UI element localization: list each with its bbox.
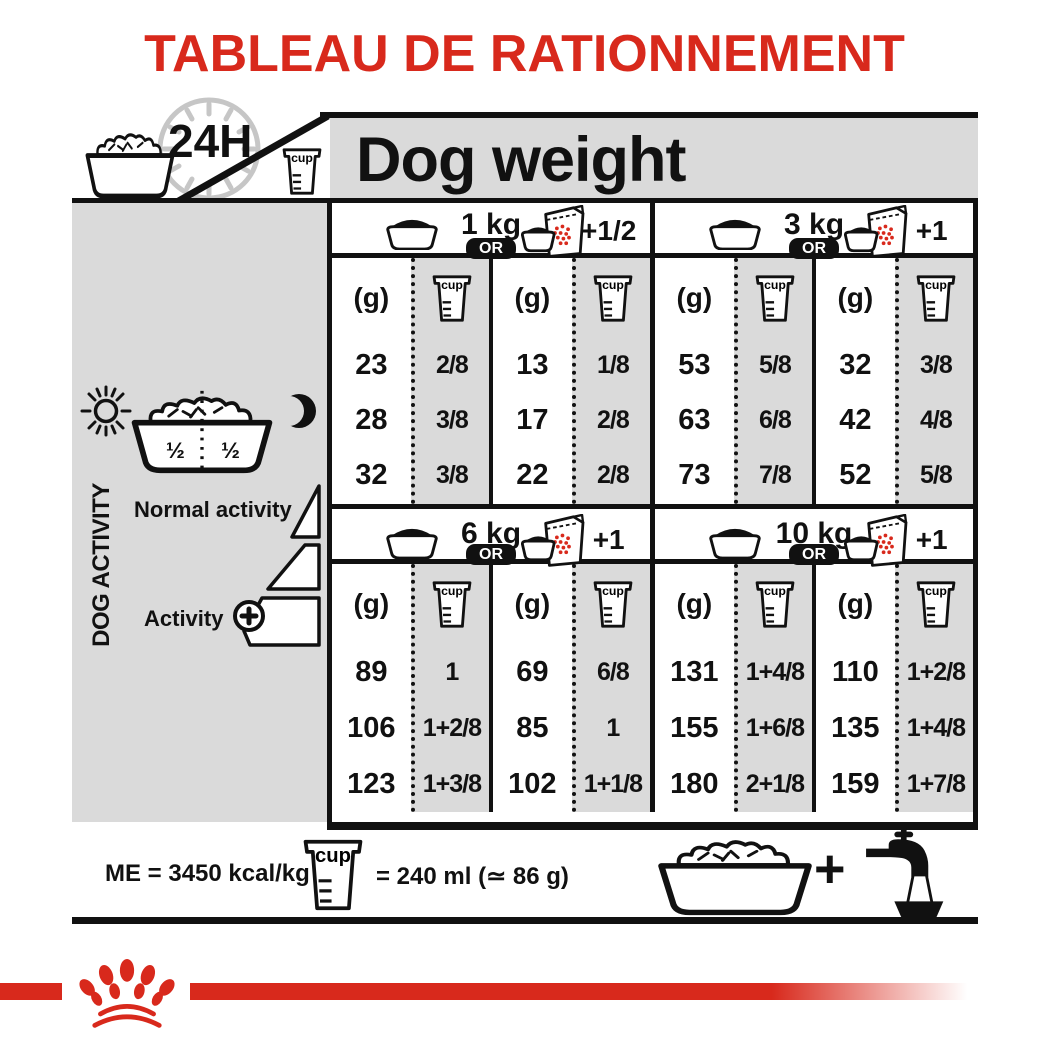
grams-column: (g) 131 155 180 <box>655 564 734 812</box>
cup-value: 1+7/8 <box>899 756 973 812</box>
grams-header: (g) <box>332 564 411 644</box>
food-pouch-icon <box>844 514 912 570</box>
bowl-plus-pouch-columns: (g) 110 135 159 cup 1+2/8 1+4/8 <box>812 564 973 812</box>
data-section-6kg: (g) 89 106 123 cup 1 1+2/8 <box>332 564 650 812</box>
bowl-plus-pouch-columns: (g) 32 42 52 cup 3/8 4/8 <box>812 258 973 504</box>
cup-label: cup <box>315 845 351 867</box>
measuring-cup-icon: cup <box>300 836 366 914</box>
cup-value: 1+4/8 <box>738 644 812 700</box>
activity-ramp-icon <box>228 481 328 653</box>
bowl-only-columns: (g) 23 28 32 cup 2/8 3/8 <box>332 258 489 504</box>
or-badge: OR <box>789 238 839 259</box>
grams-column: (g) 69 85 102 <box>493 564 572 812</box>
data-section-1kg: (g) 23 28 32 cup 2/8 3/8 <box>332 258 650 504</box>
food-bowl-icon <box>707 217 763 250</box>
kibble-bowl-icon <box>82 127 178 200</box>
cup-value: 3/8 <box>899 338 973 393</box>
grams-value: 155 <box>655 700 734 756</box>
bowl-plus-pouch-columns: (g) 13 17 22 cup 1/8 2/8 <box>489 258 650 504</box>
table-group-small-weights: 1 kg OR <box>332 203 973 504</box>
moon-icon <box>278 389 316 433</box>
cup-value: 1+2/8 <box>899 644 973 700</box>
cup-value: 7/8 <box>738 448 812 503</box>
measuring-cup-icon: cup <box>754 579 796 630</box>
grams-value: 131 <box>655 644 734 700</box>
supplement-label: +1 <box>916 524 948 556</box>
weight-section-header-6kg: 6 kg OR <box>332 509 650 559</box>
grams-value: 28 <box>332 393 411 448</box>
water-tap-icon <box>856 826 944 924</box>
bottom-rule <box>72 917 978 924</box>
svg-text:cup: cup <box>764 278 786 292</box>
grams-value: 180 <box>655 756 734 812</box>
grams-column: (g) 32 42 52 <box>816 258 895 504</box>
measuring-cup-icon: cup <box>281 146 323 197</box>
svg-text:cup: cup <box>602 584 624 598</box>
grams-header: (g) <box>493 564 572 644</box>
grams-column: (g) 23 28 32 <box>332 258 411 504</box>
metabolizable-energy-label: ME = 3450 kcal/kg <box>105 860 310 888</box>
svg-text:cup: cup <box>764 584 786 598</box>
weight-section-header-3kg: 3 kg OR <box>650 203 973 253</box>
grams-value: 106 <box>332 700 411 756</box>
cup-column: cup 1+2/8 1+4/8 1+7/8 <box>895 564 973 812</box>
cup-column: cup 6/8 1 1+1/8 <box>572 564 650 812</box>
measuring-cup-icon: cup <box>431 273 473 324</box>
cup-value: 2/8 <box>415 338 489 393</box>
grams-header: (g) <box>816 258 895 338</box>
grams-value: 123 <box>332 756 411 812</box>
page-title: TABLEAU DE RATIONNEMENT <box>0 24 1049 84</box>
cup-value: 1+2/8 <box>415 700 489 756</box>
svg-text:cup: cup <box>441 278 463 292</box>
cup-value: 3/8 <box>415 448 489 503</box>
table-data-row: (g) 89 106 123 cup 1 1+2/8 <box>332 564 973 812</box>
grams-value: 73 <box>655 448 734 503</box>
footer-strip: ME = 3450 kcal/kg cup = 240 ml (≃ 86 g) … <box>72 830 978 917</box>
grams-column: (g) 89 106 123 <box>332 564 411 812</box>
measuring-cup-icon: cup <box>592 273 634 324</box>
grams-value: 85 <box>493 700 572 756</box>
grams-value: 23 <box>332 338 411 393</box>
or-badge: OR <box>466 544 516 565</box>
grams-value: 89 <box>332 644 411 700</box>
cup-value: 5/8 <box>899 448 973 503</box>
measuring-cup-icon: cup <box>431 579 473 630</box>
ration-table-page: TABLEAU DE RATIONNEMENT 24H Dog weight c… <box>0 0 1049 1049</box>
cup-value: 5/8 <box>738 338 812 393</box>
cup-value: 1 <box>415 644 489 700</box>
grams-value: 63 <box>655 393 734 448</box>
cup-value: 1+3/8 <box>415 756 489 812</box>
grams-header: (g) <box>655 258 734 338</box>
cup-column: cup 2/8 3/8 3/8 <box>411 258 489 504</box>
supplement-label: +1 <box>593 524 625 556</box>
activity-label: Activity <box>144 606 223 632</box>
food-pouch-icon <box>521 514 589 570</box>
cup-value: 2/8 <box>576 393 650 448</box>
grams-value: 69 <box>493 644 572 700</box>
cup-value: 1+1/8 <box>576 756 650 812</box>
half-half-bowl-icon: ½ ½ <box>126 389 278 475</box>
grams-column: (g) 13 17 22 <box>493 258 572 504</box>
cup-column: cup 3/8 4/8 5/8 <box>895 258 973 504</box>
cup-value: 2/8 <box>576 448 650 503</box>
weight-section-header-1kg: 1 kg OR <box>332 203 650 253</box>
table-data-row: (g) 23 28 32 cup 2/8 3/8 <box>332 258 973 504</box>
weight-header-band: 1 kg OR <box>332 203 973 258</box>
grams-value: 32 <box>816 338 895 393</box>
food-bowl-icon <box>384 217 440 250</box>
food-bowl-icon <box>384 526 440 559</box>
measuring-cup-icon: cup <box>754 273 796 324</box>
kibble-bowl-icon <box>652 833 818 917</box>
grams-column: (g) 53 63 73 <box>655 258 734 504</box>
grams-value: 17 <box>493 393 572 448</box>
cup-value: 1+6/8 <box>738 700 812 756</box>
ration-table: 1 kg OR <box>327 203 978 830</box>
royal-canin-crown-logo <box>70 958 184 1032</box>
grams-value: 52 <box>816 448 895 503</box>
bowl-plus-pouch-columns: (g) 69 85 102 cup 6/8 1 1 <box>489 564 650 812</box>
cup-value: 6/8 <box>576 644 650 700</box>
grams-header: (g) <box>816 564 895 644</box>
svg-text:cup: cup <box>925 278 947 292</box>
grams-value: 42 <box>816 393 895 448</box>
food-bowl-icon <box>707 526 763 559</box>
dog-activity-label: DOG ACTIVITY <box>88 483 116 647</box>
bowl-only-columns: (g) 53 63 73 cup 5/8 6/8 <box>655 258 812 504</box>
cup-equivalence-label: = 240 ml (≃ 86 g) <box>376 862 569 891</box>
grams-value: 22 <box>493 448 572 503</box>
bowl-only-columns: (g) 131 155 180 cup 1+4/8 1+6/8 <box>655 564 812 812</box>
cup-column: cup 1 1+2/8 1+3/8 <box>411 564 489 812</box>
cup-value: 1 <box>576 700 650 756</box>
half-left-label: ½ <box>166 438 185 463</box>
grams-value: 32 <box>332 448 411 503</box>
cup-column: cup 1+4/8 1+6/8 2+1/8 <box>734 564 812 812</box>
cup-value: 3/8 <box>415 393 489 448</box>
measuring-cup-icon: cup <box>915 579 957 630</box>
weight-label: 1 kg <box>461 208 521 242</box>
grams-value: 135 <box>816 700 895 756</box>
cup-label: cup <box>291 151 313 165</box>
or-badge: OR <box>789 544 839 565</box>
grams-value: 53 <box>655 338 734 393</box>
cup-column: cup 5/8 6/8 7/8 <box>734 258 812 504</box>
data-section-10kg: (g) 131 155 180 cup 1+4/8 1+6/8 <box>650 564 973 812</box>
food-pouch-icon <box>521 205 589 261</box>
grams-column: (g) 110 135 159 <box>816 564 895 812</box>
supplement-label: +1/2 <box>581 215 636 247</box>
measuring-cup-icon: cup <box>592 579 634 630</box>
svg-text:cup: cup <box>925 584 947 598</box>
cup-value: 6/8 <box>738 393 812 448</box>
supplement-label: +1 <box>916 215 948 247</box>
cup-value: 1/8 <box>576 338 650 393</box>
half-right-label: ½ <box>221 438 240 463</box>
cup-column: cup 1/8 2/8 2/8 <box>572 258 650 504</box>
svg-text:cup: cup <box>441 584 463 598</box>
cup-value: 1+4/8 <box>899 700 973 756</box>
cup-value: 4/8 <box>899 393 973 448</box>
cup-value: 2+1/8 <box>738 756 812 812</box>
dog-weight-title: Dog weight <box>356 124 685 196</box>
bowl-only-columns: (g) 89 106 123 cup 1 1+2/8 <box>332 564 489 812</box>
svg-text:cup: cup <box>602 278 624 292</box>
or-badge: OR <box>466 238 516 259</box>
grams-header: (g) <box>332 258 411 338</box>
plus-icon: + <box>814 838 846 900</box>
measuring-cup-icon: cup <box>915 273 957 324</box>
dog-activity-sidebar: ½ ½ DOG ACTIVITY Normal activity Activit… <box>72 203 327 822</box>
weight-header-band: 6 kg OR <box>332 504 973 564</box>
grams-value: 110 <box>816 644 895 700</box>
table-group-large-weights: 6 kg OR <box>332 504 973 812</box>
grams-value: 102 <box>493 756 572 812</box>
data-section-3kg: (g) 53 63 73 cup 5/8 6/8 <box>650 258 973 504</box>
grams-header: (g) <box>655 564 734 644</box>
food-pouch-icon <box>844 205 912 261</box>
grams-header: (g) <box>493 258 572 338</box>
grams-value: 13 <box>493 338 572 393</box>
grams-value: 159 <box>816 756 895 812</box>
plus-circle-icon <box>235 602 263 630</box>
weight-section-header-10kg: 10 kg OR <box>650 509 973 559</box>
weight-label: 3 kg <box>784 208 844 242</box>
